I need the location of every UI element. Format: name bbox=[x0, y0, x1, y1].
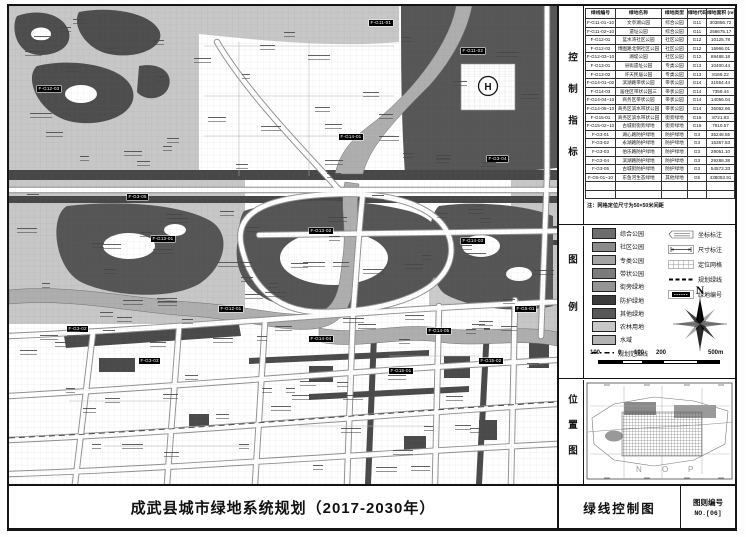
cell-green-space-name: 居住区带状公园三 bbox=[616, 87, 662, 96]
coordinate-annotation bbox=[55, 342, 76, 347]
table-row: F-G11-01~10 文亭湖公园 综合公园 G11 303856.72 bbox=[586, 19, 735, 28]
legend-color-swatch bbox=[592, 295, 616, 306]
table-row: F-G15-02~10 古城街街旁绿地 街旁绿地 G15 7910.57 bbox=[586, 122, 735, 131]
compass-north-label: N bbox=[672, 284, 728, 296]
coordinate-annotation bbox=[66, 67, 79, 72]
coordinate-annotation bbox=[153, 249, 173, 254]
cell-green-space-area: 10400.44 bbox=[707, 61, 735, 70]
green-line-number-label: F-G14-01 bbox=[339, 134, 363, 140]
coordinate-annotation bbox=[303, 262, 325, 267]
legend-symbol-item: 尺寸标注 bbox=[668, 245, 722, 255]
cell-green-space-name: 许天民居公园 bbox=[616, 70, 662, 79]
table-row: F-G15-01 商务区滨水带状公园 街旁绿地 G15 8721.93 bbox=[586, 113, 735, 122]
sheet-frame: H F-G11-01F-G11-02F-G12-03F-G3-05F-G13-0… bbox=[7, 4, 737, 531]
cell-green-line-code: F-G14-04~10 bbox=[586, 96, 616, 105]
coordinate-annotation bbox=[271, 406, 291, 411]
coordinate-annotation bbox=[284, 32, 294, 37]
cell-green-space-name: 商务区滨水带状公园 bbox=[616, 113, 662, 122]
table-row: F-G3-01 湖心路防护绿地 防护绿地 G3 35248.55 bbox=[586, 130, 735, 139]
cell-green-line-code: F-G13-02 bbox=[586, 70, 616, 79]
coordinate-annotation bbox=[103, 330, 115, 335]
grid-letter-o: O bbox=[662, 465, 668, 474]
table-row: F-G12-03~10 湖堤公园 社区公园 G12 89488.18 bbox=[586, 53, 735, 62]
cell-green-space-name: 文亭湖公园 bbox=[616, 19, 662, 28]
coordinate-annotation bbox=[241, 277, 254, 282]
cell-green-space-class: G12 bbox=[688, 44, 707, 53]
cell-green-space-name: 永湖路防护绿地 bbox=[616, 139, 662, 148]
legend-item: 其他绿地 bbox=[592, 308, 644, 318]
cell-green-space-area: 10125.78 bbox=[707, 36, 735, 45]
coordinate-annotation bbox=[67, 331, 79, 336]
cell-green-line-code: F-G14-01~02 bbox=[586, 79, 616, 88]
cell-green-space-type: 防护绿地 bbox=[662, 156, 688, 165]
cell-green-line-code: F-G11-02~10 bbox=[586, 27, 616, 36]
legend-color-swatch bbox=[592, 321, 616, 332]
coordinate-annotation bbox=[292, 395, 309, 400]
coordinate-annotation bbox=[300, 381, 315, 386]
coordinate-annotation bbox=[242, 74, 250, 79]
table-row: F-G11-02~10 遗址公园 综合公园 G11 256675.17 bbox=[586, 27, 735, 36]
coordinate-annotation bbox=[140, 232, 152, 237]
coordinate-annotation bbox=[479, 321, 493, 326]
coordinate-annotation bbox=[80, 156, 89, 161]
section-control-indicators: 控制指标 绿线编号 绿地名称 绿地类型 绿地代码 绿地 bbox=[559, 6, 735, 225]
legend-symbol-label: 坐标标注 bbox=[698, 230, 722, 239]
legend-color-swatch bbox=[592, 255, 616, 266]
cell-green-space-type: 防护绿地 bbox=[662, 139, 688, 148]
coordinate-annotation bbox=[286, 388, 296, 393]
coordinate-annotation bbox=[379, 136, 399, 141]
coordinate-annotation bbox=[379, 114, 393, 119]
coordinate-annotation bbox=[163, 394, 179, 399]
cell-green-space-class: G13 bbox=[688, 70, 707, 79]
table-row: F-G3-03 伯乐路防护绿地 防护绿地 G3 29051.10 bbox=[586, 147, 735, 156]
cell-green-space-area: 15966.01 bbox=[707, 44, 735, 53]
table-row: F-G5-01~10 东鱼河生态绿地 其他绿地 G5 438053.91 bbox=[586, 173, 735, 182]
coordinate-annotation bbox=[40, 335, 58, 340]
table-row: F-G13-02 许天民居公园 专类公园 G13 8169.22 bbox=[586, 70, 735, 79]
coordinate-annotation bbox=[216, 414, 228, 419]
legend-item-label: 带状公园 bbox=[620, 269, 644, 278]
coordinate-annotation bbox=[402, 37, 411, 42]
cell-green-space-area: 7359.44 bbox=[707, 87, 735, 96]
sheet-number-block: 图则编号 NO.[06] bbox=[681, 486, 735, 528]
cell-green-space-name: 商务区滨水带状公园 bbox=[616, 104, 662, 113]
coordinate-annotation bbox=[92, 444, 101, 449]
legend-item-label: 其他绿地 bbox=[620, 309, 644, 318]
section-label-control: 控制指标 bbox=[559, 6, 584, 224]
cell-green-space-type: 社区公园 bbox=[662, 44, 688, 53]
cell-green-line-code: F-G3-03 bbox=[586, 147, 616, 156]
legend-item-label: 专类公园 bbox=[620, 256, 644, 265]
coordinate-annotation bbox=[363, 92, 378, 97]
coordinate-annotation bbox=[213, 338, 234, 343]
cell-green-space-class: G3 bbox=[688, 156, 707, 165]
cell-green-space-area: 7910.57 bbox=[707, 122, 735, 131]
green-line-control-table: 绿线编号 绿地名称 绿地类型 绿地代码 绿地面积 (m²) bbox=[585, 8, 735, 199]
legend-item: 街旁绿地 bbox=[592, 282, 644, 292]
legend-color-swatch bbox=[592, 335, 616, 346]
cell-green-space-name: 湖心路防护绿地 bbox=[616, 130, 662, 139]
coordinate-annotation bbox=[405, 264, 423, 269]
cell-green-space-area: 303856.72 bbox=[707, 19, 735, 28]
cell-green-space-type: 社区公园 bbox=[662, 36, 688, 45]
cell-green-space-class: G12 bbox=[688, 36, 707, 45]
coordinate-annotation bbox=[30, 113, 52, 118]
coordinate-annotation bbox=[42, 283, 50, 288]
coordinate-annotation bbox=[325, 124, 342, 129]
title-bar: 成武县城市绿地系统规划（2017-2030年） 绿线控制图 图则编号 NO.[0… bbox=[9, 484, 735, 528]
coordinate-annotation bbox=[468, 209, 483, 214]
legend-symbol-label: 定位网格 bbox=[698, 260, 722, 269]
table-row: F-G12-01 蓝水湾社区公园 社区公园 G12 10125.78 bbox=[586, 36, 735, 45]
legend-item-label: 社区公园 bbox=[620, 242, 644, 251]
green-line-number-label: F-G13-02 bbox=[309, 228, 333, 234]
coordinate-annotation bbox=[105, 398, 120, 403]
coordinate-annotation bbox=[376, 467, 396, 472]
coordinate-annotation bbox=[313, 465, 323, 470]
cell-green-space-class: G14 bbox=[688, 104, 707, 113]
coordinate-annotation bbox=[411, 466, 430, 471]
cell-green-space-area: 29288.38 bbox=[707, 156, 735, 165]
cell-green-space-class: G15 bbox=[688, 122, 707, 131]
grid-spacing-note: 注：网格定位尺寸为50×50米间距 bbox=[587, 202, 735, 209]
coordinate-annotation bbox=[462, 245, 473, 250]
cell-green-space-class: G3 bbox=[688, 139, 707, 148]
coordinate-annotation bbox=[117, 317, 132, 322]
table-header-cell: 绿地面积 (m²) bbox=[707, 9, 735, 19]
coordinate-annotation bbox=[325, 160, 343, 165]
legend-symbol-item: 坐标标注 bbox=[668, 230, 722, 240]
coordinate-annotation bbox=[405, 315, 424, 320]
coordinate-annotation bbox=[103, 244, 120, 249]
scale-bar-numbers: 100 0 100 200 500m bbox=[584, 350, 735, 358]
cell-green-space-class: G14 bbox=[688, 79, 707, 88]
green-line-number-label: F-G5-01 bbox=[515, 306, 536, 312]
sheet-name: 绿线控制图 bbox=[559, 486, 681, 528]
cell-green-space-name: 遗址公园 bbox=[616, 27, 662, 36]
table-row: F-G14-01~02 滨湖路带状公园 带状公园 G14 31554.44 bbox=[586, 79, 735, 88]
section-location-map: 位置图 N bbox=[559, 380, 735, 485]
cell-green-space-class: G11 bbox=[688, 19, 707, 28]
side-panel: 控制指标 绿线编号 绿地名称 绿地类型 绿地代码 绿地 bbox=[559, 6, 735, 484]
cell-green-line-code: F-G3-01 bbox=[586, 130, 616, 139]
legend-item-label: 水域 bbox=[620, 335, 632, 344]
coordinate-annotation bbox=[240, 262, 252, 267]
coordinate-annotation bbox=[100, 312, 113, 317]
cell-green-space-area: 8721.93 bbox=[707, 113, 735, 122]
coordinate-annotation bbox=[473, 201, 486, 206]
section-label-location: 位置图 bbox=[559, 380, 584, 485]
cell-green-space-area: 256675.17 bbox=[707, 27, 735, 36]
coordinate-annotation bbox=[470, 428, 481, 433]
green-line-number-label: F-G13-01 bbox=[151, 236, 175, 242]
coordinate-annotation bbox=[59, 27, 71, 32]
green-line-number-label: F-G14-03 bbox=[461, 238, 485, 244]
coordinate-annotation bbox=[104, 269, 116, 274]
coordinate-annotation bbox=[17, 228, 37, 233]
coordinate-annotation bbox=[403, 153, 414, 158]
legend-symbol-item: 定位网格 bbox=[668, 260, 722, 270]
location-inset-map: N O P bbox=[584, 380, 735, 484]
legend-item: 带状公园 bbox=[592, 268, 644, 278]
cell-green-line-code: F-G11-01~10 bbox=[586, 19, 616, 28]
coordinate-annotation bbox=[527, 363, 539, 368]
table-row: F-G12-02 博囿路北侧社区公园 社区公园 G12 15966.01 bbox=[586, 44, 735, 53]
coordinate-annotation bbox=[265, 292, 286, 297]
coordinate-annotation bbox=[245, 294, 263, 299]
table-header-cell: 绿地代码 bbox=[688, 9, 707, 19]
coordinate-annotation bbox=[393, 450, 413, 455]
legend-item: 综合公园 bbox=[592, 229, 644, 239]
coordinate-annotation bbox=[466, 329, 476, 334]
cell-green-space-class: G5 bbox=[688, 173, 707, 182]
cell-green-line-code: F-G13-01 bbox=[586, 61, 616, 70]
green-line-number-label: F-G14-04 bbox=[309, 336, 333, 342]
cell-green-space-area: 29051.10 bbox=[707, 147, 735, 156]
cell-green-space-type: 街旁绿地 bbox=[662, 122, 688, 131]
legend-color-swatch bbox=[592, 228, 616, 239]
cell-green-space-name: 滨湖路防护绿地 bbox=[616, 156, 662, 165]
cell-green-space-area: 8169.22 bbox=[707, 70, 735, 79]
coordinate-annotation bbox=[261, 126, 281, 131]
cell-green-space-type: 专类公园 bbox=[662, 70, 688, 79]
cell-green-space-name: 滨湖路带状公园 bbox=[616, 79, 662, 88]
coordinate-annotation bbox=[481, 162, 496, 167]
green-line-number-label: F-G3-03 bbox=[139, 358, 160, 364]
coordinate-annotation bbox=[182, 319, 193, 324]
green-line-number-label: F-G14-05 bbox=[427, 328, 451, 334]
cell-green-space-area: 35062.66 bbox=[707, 104, 735, 113]
coordinate-annotation bbox=[122, 444, 143, 449]
coordinate-annotation bbox=[246, 227, 260, 232]
scale-number: 500m bbox=[708, 350, 723, 356]
legend-item-label: 综合公园 bbox=[620, 229, 644, 238]
coordinate-annotation bbox=[328, 217, 348, 222]
coordinate-annotation bbox=[194, 58, 211, 63]
table-header-row: 绿线编号 绿地名称 绿地类型 绿地代码 绿地面积 (m²) bbox=[586, 9, 735, 19]
coordinate-annotation bbox=[454, 81, 467, 86]
cell-green-space-class: G14 bbox=[688, 96, 707, 105]
coordinate-annotation bbox=[27, 194, 40, 199]
scale-number: 200 bbox=[656, 350, 666, 356]
cell-green-space-name: 县衙遗址公园 bbox=[616, 61, 662, 70]
grid-letter-p: P bbox=[688, 465, 693, 474]
legend-color-swatch bbox=[592, 308, 616, 319]
coordinate-annotation bbox=[164, 452, 179, 457]
table-row: F-G13-01 县衙遗址公园 专类公园 G13 10400.44 bbox=[586, 61, 735, 70]
grid-letter-n: N bbox=[636, 465, 642, 474]
cell-green-space-class: G11 bbox=[688, 27, 707, 36]
cell-green-space-name: 湖堤公园 bbox=[616, 53, 662, 62]
table-row: F-G3-02 永湖路防护绿地 防护绿地 G3 15367.53 bbox=[586, 139, 735, 148]
legend-color-swatch bbox=[592, 242, 616, 253]
coordinate-annotation bbox=[315, 107, 330, 112]
coordinate-annotation bbox=[257, 336, 267, 341]
coordinate-annotation bbox=[521, 94, 539, 99]
cell-green-line-code: F-G14-03 bbox=[586, 87, 616, 96]
coordinate-annotation bbox=[34, 36, 50, 41]
coordinate-annotation bbox=[275, 326, 292, 331]
cell-green-space-area: 438053.91 bbox=[707, 173, 735, 182]
table-empty-row bbox=[586, 182, 735, 191]
coordinate-annotation bbox=[422, 255, 430, 260]
cell-green-space-type: 街旁绿地 bbox=[662, 113, 688, 122]
cell-green-line-code: F-G15-01 bbox=[586, 113, 616, 122]
coordinate-annotation bbox=[123, 300, 143, 305]
coordinate-annotation bbox=[308, 55, 330, 60]
green-line-number-label: F-G3-05 bbox=[127, 194, 148, 200]
cell-green-line-code: F-G3-02 bbox=[586, 139, 616, 148]
positioning-grid-icon bbox=[668, 260, 694, 269]
coordinate-annotation bbox=[533, 270, 554, 275]
coordinate-annotation bbox=[437, 213, 447, 218]
green-line-number-label: F-G11-01 bbox=[369, 20, 393, 26]
coordinate-annotation bbox=[358, 324, 376, 329]
sheet-number-label: 图则编号 bbox=[693, 497, 723, 508]
cell-green-space-class: G14 bbox=[688, 87, 707, 96]
legend-item-label: 街旁绿地 bbox=[620, 282, 644, 291]
coordinate-annotation bbox=[154, 40, 165, 45]
scale-number: 0 bbox=[618, 350, 621, 356]
coordinate-annotation bbox=[436, 155, 451, 160]
cell-green-space-area: 35248.55 bbox=[707, 130, 735, 139]
legend-symbol-label: 尺寸标注 bbox=[698, 245, 722, 254]
coordinate-annotation bbox=[83, 408, 96, 413]
coordinate-annotation bbox=[343, 318, 363, 323]
cell-green-space-type: 社区公园 bbox=[662, 53, 688, 62]
cell-green-space-type: 综合公园 bbox=[662, 19, 688, 28]
table-row: F-G3-04 滨湖路防护绿地 防护绿地 G3 29288.38 bbox=[586, 156, 735, 165]
compass-rose-icon bbox=[672, 296, 728, 352]
green-line-number-label: F-G11-02 bbox=[461, 48, 485, 54]
coordinate-annotation bbox=[166, 214, 182, 219]
legend-item: 防护绿地 bbox=[592, 295, 644, 305]
cell-green-space-type: 综合公园 bbox=[662, 27, 688, 36]
table-row: F-G14-05~10 商务区滨水带状公园 带状公园 G14 35062.66 bbox=[586, 104, 735, 113]
legend-item: 专类公园 bbox=[592, 255, 644, 265]
coordinate-annotation-icon bbox=[668, 230, 694, 239]
coordinate-annotation bbox=[218, 262, 240, 267]
cell-green-space-class: G13 bbox=[688, 61, 707, 70]
sheet-number: NO.[06] bbox=[694, 510, 721, 517]
coordinate-annotation bbox=[424, 426, 433, 431]
table-header-cell: 绿地类型 bbox=[662, 9, 688, 19]
coordinate-annotation bbox=[167, 138, 180, 143]
dimension-annotation-icon bbox=[668, 245, 694, 254]
cell-green-space-name: 古城街防护绿地 bbox=[616, 165, 662, 174]
cell-green-space-name: 蓝水湾社区公园 bbox=[616, 36, 662, 45]
coordinate-annotation bbox=[399, 339, 410, 344]
coordinate-annotation bbox=[262, 388, 272, 393]
coordinate-annotation bbox=[341, 428, 361, 433]
coordinate-annotation bbox=[163, 146, 172, 151]
coordinate-annotation bbox=[455, 425, 471, 430]
cell-green-space-class: G3 bbox=[688, 147, 707, 156]
green-line-number-label: F-G15-02 bbox=[479, 358, 503, 364]
table-empty-row bbox=[586, 190, 735, 199]
coordinate-annotation bbox=[150, 342, 165, 347]
table-row: F-G14-03 居住区带状公园三 带状公园 G14 7359.44 bbox=[586, 87, 735, 96]
cell-green-space-type: 带状公园 bbox=[662, 87, 688, 96]
coordinate-annotation bbox=[327, 173, 341, 178]
cell-green-space-type: 带状公园 bbox=[662, 79, 688, 88]
coordinate-annotation bbox=[73, 19, 86, 24]
project-title: 成武县城市绿地系统规划（2017-2030年） bbox=[9, 486, 559, 528]
coordinate-annotation bbox=[20, 350, 37, 355]
cell-green-space-type: 防护绿地 bbox=[662, 147, 688, 156]
coordinate-annotation bbox=[185, 375, 199, 380]
table-header-cell: 绿线编号 bbox=[586, 9, 616, 19]
plan-sheet: H F-G11-01F-G11-02F-G12-03F-G3-05F-G13-0… bbox=[0, 0, 746, 537]
coordinate-annotation bbox=[480, 218, 490, 223]
cell-green-line-code: F-G12-01 bbox=[586, 36, 616, 45]
coordinate-annotation bbox=[388, 375, 407, 380]
cell-green-line-code: F-G12-03~10 bbox=[586, 53, 616, 62]
green-space-plan-map: H F-G11-01F-G11-02F-G12-03F-G3-05F-G13-0… bbox=[9, 6, 559, 484]
cell-green-space-type: 带状公园 bbox=[662, 104, 688, 113]
cell-green-space-class: G15 bbox=[688, 113, 707, 122]
section-label-legend: 图例 bbox=[559, 226, 584, 379]
coordinate-annotation bbox=[343, 395, 363, 400]
coordinate-annotation bbox=[208, 117, 226, 122]
scale-bar bbox=[598, 360, 720, 364]
cell-green-space-area: 54573.33 bbox=[707, 165, 735, 174]
cell-green-line-code: F-G5-01~10 bbox=[586, 173, 616, 182]
green-line-number-label: F-G15-01 bbox=[389, 368, 413, 374]
coordinate-annotation bbox=[239, 444, 249, 449]
coordinate-annotation bbox=[124, 151, 142, 156]
scale-number: 100 bbox=[634, 350, 644, 356]
coordinate-annotation bbox=[137, 161, 149, 166]
cell-green-space-type: 其他绿地 bbox=[662, 173, 688, 182]
coordinate-annotation bbox=[446, 396, 464, 401]
table-header-cell: 绿地名称 bbox=[616, 9, 662, 19]
cell-green-space-type: 专类公园 bbox=[662, 61, 688, 70]
legend-color-swatch bbox=[592, 268, 616, 279]
coordinate-annotation bbox=[269, 283, 279, 288]
cell-green-space-type: 防护绿地 bbox=[662, 130, 688, 139]
legend-item-label: 防护绿地 bbox=[620, 296, 644, 305]
cell-green-space-area: 89488.18 bbox=[707, 53, 735, 62]
cell-green-space-area: 15367.53 bbox=[707, 139, 735, 148]
coordinate-annotation bbox=[46, 132, 63, 137]
coordinate-annotation bbox=[372, 195, 385, 200]
green-line-number-label: F-G12-01 bbox=[219, 306, 243, 312]
coordinate-annotation bbox=[160, 336, 171, 341]
cell-green-space-area: 14056.04 bbox=[707, 96, 735, 105]
coordinate-annotation bbox=[220, 211, 234, 216]
cell-green-space-name: 商务区带状公园 bbox=[616, 96, 662, 105]
legend-item-label: 农林用地 bbox=[620, 322, 644, 331]
section-legend: 图例 综合公园 社区公园 bbox=[559, 226, 735, 380]
coordinate-annotation bbox=[363, 269, 385, 274]
legend-item: 农林用地 bbox=[592, 322, 644, 332]
cell-green-space-name: 伯乐路防护绿地 bbox=[616, 147, 662, 156]
coordinate-annotation bbox=[158, 301, 177, 306]
table-row: F-G14-04~10 商务区带状公园 带状公园 G14 14056.04 bbox=[586, 96, 735, 105]
cell-green-space-name: 古城街街旁绿地 bbox=[616, 122, 662, 131]
coordinate-annotation bbox=[497, 52, 518, 57]
coordinate-annotation bbox=[260, 45, 275, 50]
cell-green-space-name: 博囿路北侧社区公园 bbox=[616, 44, 662, 53]
cell-green-space-type: 带状公园 bbox=[662, 96, 688, 105]
coordinate-annotation bbox=[329, 236, 340, 241]
coordinate-annotation bbox=[157, 76, 166, 81]
green-line-number-label: F-G12-03 bbox=[37, 86, 61, 92]
coordinate-annotation bbox=[66, 388, 75, 393]
coordinate-annotation bbox=[107, 48, 116, 53]
